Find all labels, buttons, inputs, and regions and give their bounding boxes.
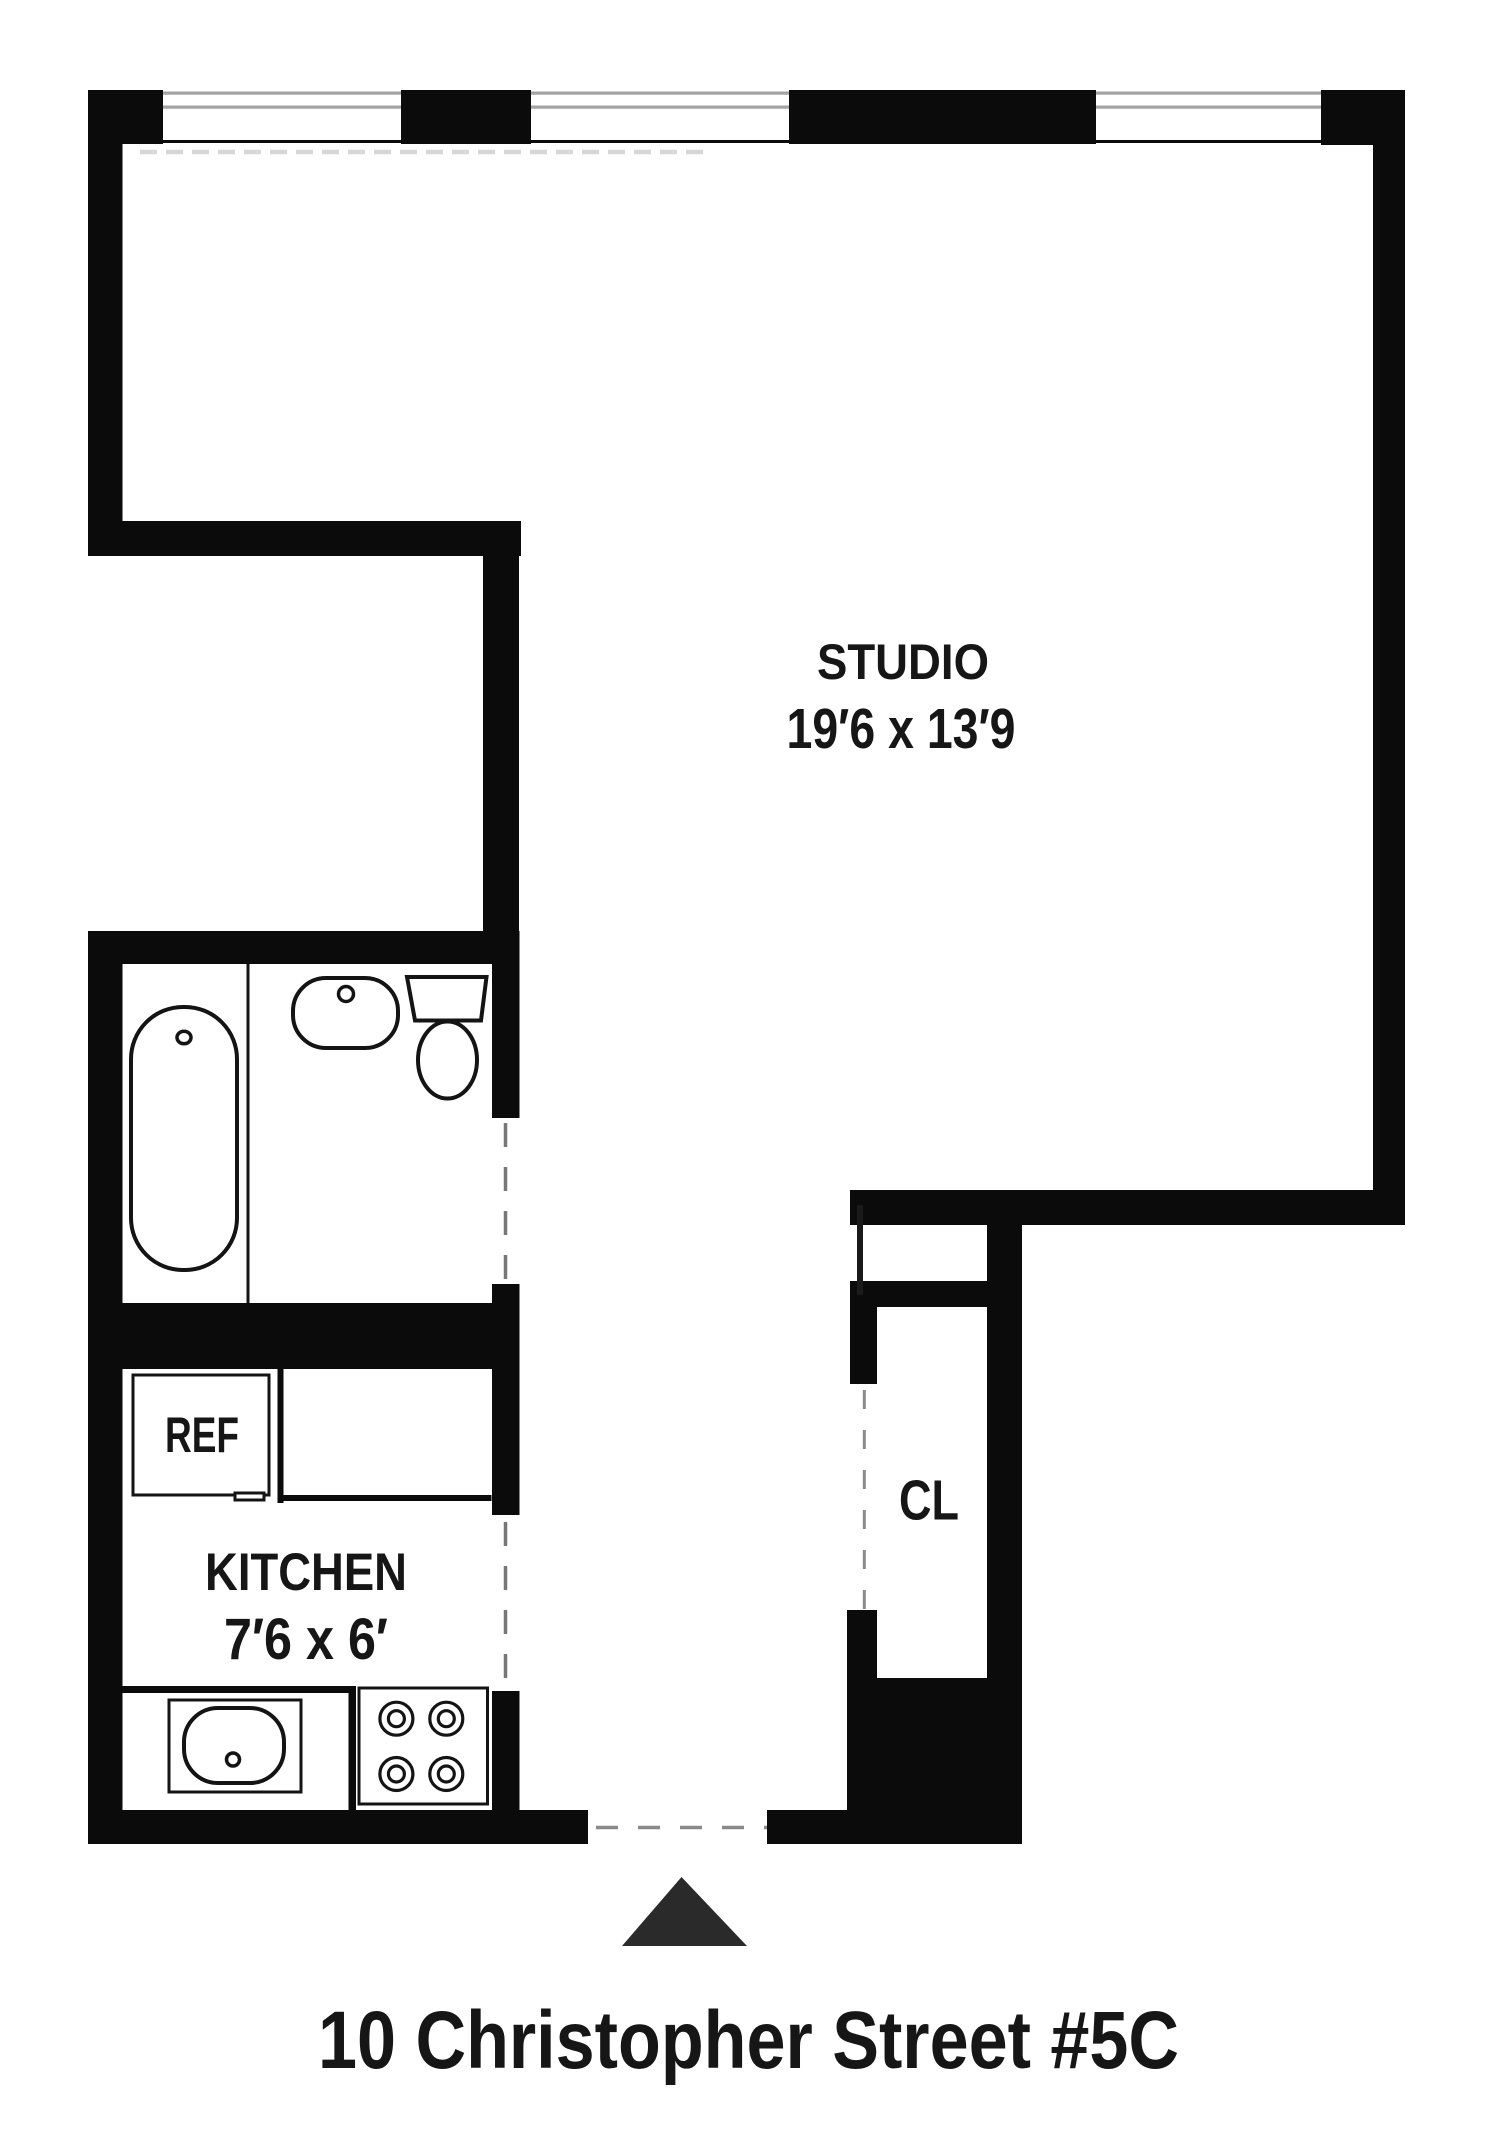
svg-text:7′6 x 6′: 7′6 x 6′ [224, 1607, 388, 1672]
svg-text:10 Christopher Street #5C: 10 Christopher Street #5C [318, 1995, 1179, 2086]
svg-text:19′6 x 13′9: 19′6 x 13′9 [787, 697, 1016, 761]
svg-text:REF: REF [165, 1407, 239, 1463]
svg-text:STUDIO: STUDIO [817, 634, 989, 690]
svg-text:KITCHEN: KITCHEN [205, 1543, 407, 1602]
svg-text:CL: CL [899, 1469, 959, 1533]
